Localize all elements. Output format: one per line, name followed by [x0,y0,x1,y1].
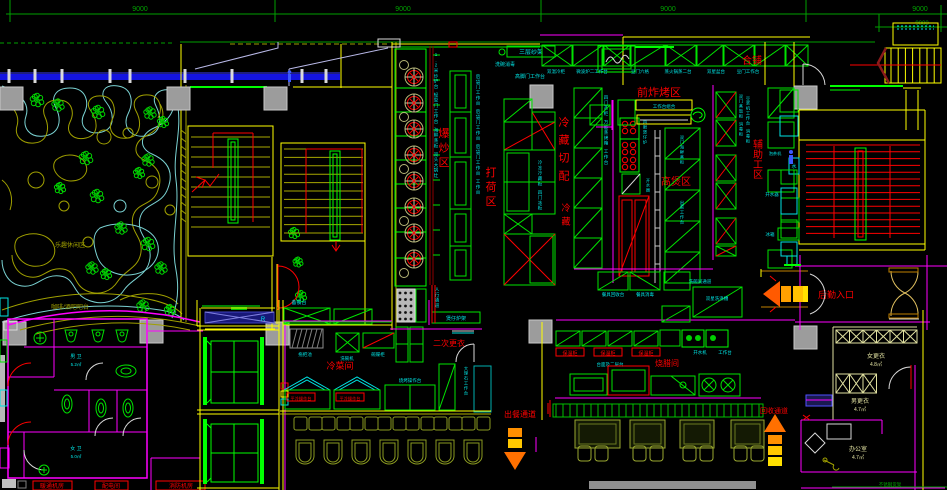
svg-text:区: 区 [439,157,450,169]
svg-text:开水机: 开水机 [693,349,707,356]
svg-text:双星洗涤槽: 双星洗涤槽 [706,295,729,302]
svg-text:备餐台: 备餐台 [291,299,306,306]
svg-text:冰箱: 冰箱 [766,231,775,238]
svg-text:台面及二层台: 台面及二层台 [597,361,624,368]
svg-text:消防机房: 消防机房 [169,482,193,490]
svg-text:台: 台 [476,135,481,142]
svg-text:冰: 冰 [538,199,543,205]
svg-text:炒: 炒 [434,73,439,78]
svg-text:豆门六格: 豆门六格 [631,68,649,75]
svg-text:4.7㎡: 4.7㎡ [852,454,864,461]
svg-text:不锈钢货架: 不锈钢货架 [879,481,902,488]
svg-text:藏: 藏 [561,216,570,227]
svg-text:爆: 爆 [439,126,450,140]
svg-text:R: R [261,317,266,323]
svg-text:配: 配 [559,169,570,182]
svg-text:洗碗间通道: 洗碗间通道 [689,278,712,285]
svg-text:烧腊间: 烧腊间 [655,358,679,368]
svg-text:女更衣: 女更衣 [867,352,885,360]
svg-text:4.7㎡: 4.7㎡ [854,406,866,413]
svg-text:保温柜: 保温柜 [638,350,653,357]
svg-text:开水器: 开水器 [765,191,779,198]
svg-text:高脚门工作台: 高脚门工作台 [515,73,545,80]
svg-text:工: 工 [604,149,609,154]
svg-text:双温冷柜: 双温冷柜 [547,68,565,75]
svg-text:餐具回收台: 餐具回收台 [602,291,625,298]
svg-text:女 卫: 女 卫 [70,445,81,452]
svg-text:二次更衣: 二次更衣 [433,338,465,348]
svg-text:男 卫: 男 卫 [70,354,81,360]
svg-text:台: 台 [680,219,684,226]
svg-text:打: 打 [486,165,497,179]
svg-text:双星盆台: 双星盆台 [707,68,725,75]
svg-text:区: 区 [486,196,497,208]
svg-text:工: 工 [434,108,439,113]
svg-text:5.0㎡: 5.0㎡ [71,453,82,459]
svg-text:四: 四 [538,190,543,195]
svg-text:配电间: 配电间 [102,482,120,490]
svg-text:切: 切 [559,152,570,165]
svg-text:三层纱架: 三层纱架 [519,48,543,56]
svg-text:9000: 9000 [660,6,676,13]
svg-text:前炸烤区: 前炸烤区 [637,85,681,99]
svg-text:4.8㎡: 4.8㎡ [870,361,882,368]
svg-text:办公室: 办公室 [849,445,867,453]
svg-text:蒸火锅蒸二台: 蒸火锅蒸二台 [665,68,692,75]
svg-text:微波炉二工作台: 微波炉二工作台 [576,68,608,75]
svg-text:四: 四 [604,95,609,100]
svg-text:区: 区 [753,169,763,181]
svg-text:豆门工作台: 豆门工作台 [737,68,760,75]
svg-text:工: 工 [476,179,481,184]
svg-text:9000: 9000 [912,6,928,13]
svg-text:台: 台 [476,100,481,107]
svg-text:台: 台 [604,159,609,166]
svg-text:合铺: 合铺 [742,54,762,67]
svg-text:台: 台 [476,189,481,196]
svg-text:灶: 灶 [434,172,439,179]
svg-text:煲仔炉架: 煲仔炉架 [446,315,466,322]
svg-text:柜: 柜 [739,130,743,137]
svg-text:乐趣休闲区: 乐趣休闲区 [55,241,85,249]
svg-text:出餐通道: 出餐通道 [504,409,536,419]
svg-text:咖啡/酒吧吧台: 咖啡/酒吧吧台 [51,303,89,311]
svg-text:工: 工 [476,125,481,130]
svg-text:型: 型 [434,97,439,103]
svg-text:暖通机房: 暖通机房 [40,482,64,490]
svg-text:柜: 柜 [680,159,684,166]
svg-text:柜: 柜 [739,113,743,120]
svg-text:.: . [435,57,436,62]
svg-text:柜: 柜 [538,205,543,212]
svg-text:工作台组合: 工作台组合 [653,103,676,110]
svg-text:冷: 冷 [559,116,570,129]
svg-text:箱: 箱 [604,140,609,147]
svg-text:保温柜: 保温柜 [600,350,615,357]
svg-text:洗碗消毒: 洗碗消毒 [495,61,515,68]
svg-text:冻: 冻 [538,164,543,170]
svg-text:回收通道: 回收通道 [760,406,788,415]
svg-text:柜: 柜 [746,137,750,144]
svg-text:台: 台 [746,120,750,127]
svg-text:5.2㎡: 5.2㎡ [71,361,82,367]
svg-text:保温柜: 保温柜 [562,350,577,357]
svg-text:台: 台 [476,170,481,177]
svg-text:工: 工 [476,90,481,95]
svg-text:炉: 炉 [643,139,647,146]
svg-text:烧烤操作台: 烧烤操作台 [399,377,422,384]
svg-text:台: 台 [434,83,439,90]
svg-text:藏: 藏 [559,134,570,147]
svg-text:炒: 炒 [439,141,450,154]
svg-text:平冷操作台: 平冷操作台 [291,395,312,402]
svg-text:荷: 荷 [486,180,497,193]
svg-text:9000: 9000 [395,6,411,13]
svg-text:台: 台 [434,118,439,125]
svg-text:冷: 冷 [561,202,570,213]
svg-text:泡茶机: 泡茶机 [769,150,782,157]
svg-text:男更衣: 男更衣 [851,397,869,405]
svg-text:拖把池: 拖把池 [298,351,312,358]
svg-text:碗碟柜: 碗碟柜 [371,351,385,358]
svg-text:后勤入口: 后勤入口 [818,289,854,300]
svg-text:台: 台 [464,390,468,397]
svg-text:9000: 9000 [132,6,148,13]
svg-text:工: 工 [476,160,481,165]
svg-text:餐具消毒: 餐具消毒 [636,291,654,298]
svg-text:柜: 柜 [538,180,543,187]
svg-text:平冷操作台: 平冷操作台 [340,395,361,402]
svg-text:冷菜间: 冷菜间 [326,360,353,371]
svg-text:工作台: 工作台 [718,349,732,356]
svg-text:水: 水 [791,163,796,170]
